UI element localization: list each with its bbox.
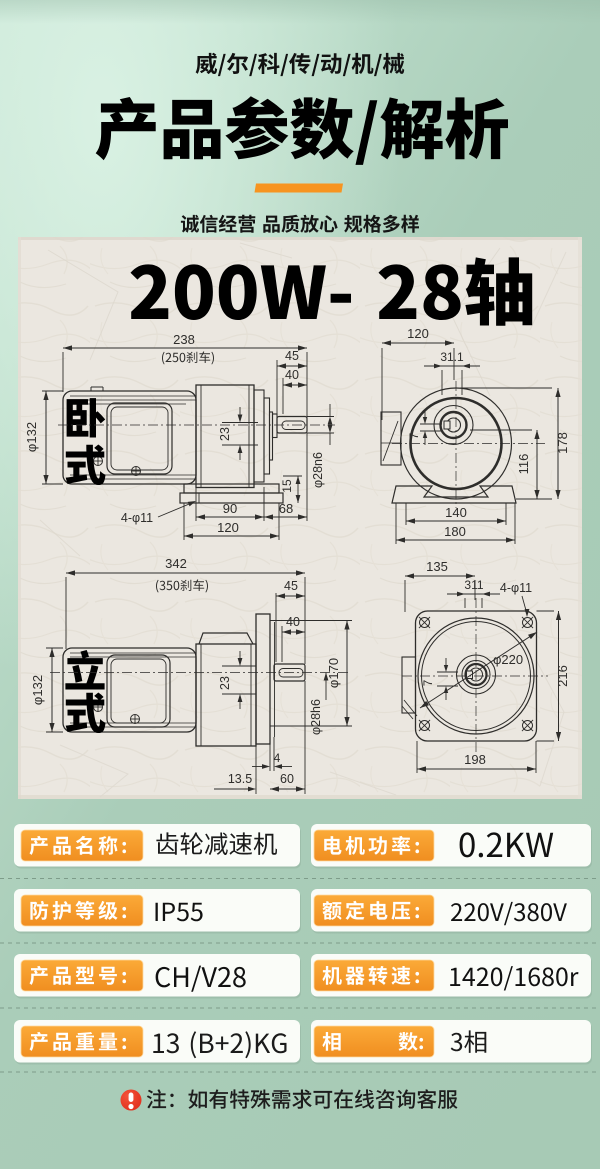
- svg-text:φ132: φ132: [30, 675, 45, 705]
- svg-text:45: 45: [285, 349, 299, 363]
- svg-text:φ28h6: φ28h6: [309, 699, 323, 735]
- svg-text:7: 7: [409, 433, 421, 439]
- svg-text:13.5: 13.5: [228, 772, 252, 786]
- svg-text:120: 120: [217, 520, 239, 535]
- svg-text:φ170: φ170: [326, 658, 341, 688]
- svg-text:15: 15: [280, 479, 294, 493]
- svg-text:40: 40: [285, 368, 299, 382]
- svg-text:40: 40: [286, 615, 300, 629]
- svg-text:31.1: 31.1: [440, 350, 464, 364]
- svg-text:60: 60: [280, 772, 294, 786]
- svg-text:φ132: φ132: [24, 422, 39, 452]
- svg-text:φ28n6: φ28n6: [311, 452, 325, 488]
- svg-text:342: 342: [165, 556, 187, 571]
- svg-text:68: 68: [279, 501, 293, 516]
- svg-text:140: 140: [445, 505, 467, 520]
- svg-text:216: 216: [555, 665, 570, 687]
- svg-text:φ220: φ220: [493, 652, 523, 667]
- svg-text:4-φ11: 4-φ11: [121, 511, 153, 525]
- svg-text:23: 23: [218, 427, 232, 441]
- svg-text:198: 198: [464, 752, 486, 767]
- svg-text:311: 311: [464, 578, 483, 592]
- svg-text:180: 180: [444, 524, 466, 539]
- svg-text:4: 4: [274, 751, 281, 765]
- svg-text:178: 178: [555, 432, 570, 454]
- svg-text:238: 238: [173, 332, 195, 347]
- svg-text:120: 120: [407, 326, 429, 341]
- svg-text:7: 7: [423, 680, 435, 686]
- svg-text:116: 116: [516, 454, 531, 475]
- svg-text:45: 45: [284, 579, 298, 593]
- svg-text:135: 135: [426, 559, 448, 574]
- svg-text:4-φ11: 4-φ11: [500, 581, 532, 595]
- svg-text:23: 23: [218, 676, 232, 690]
- svg-text:90: 90: [223, 501, 237, 516]
